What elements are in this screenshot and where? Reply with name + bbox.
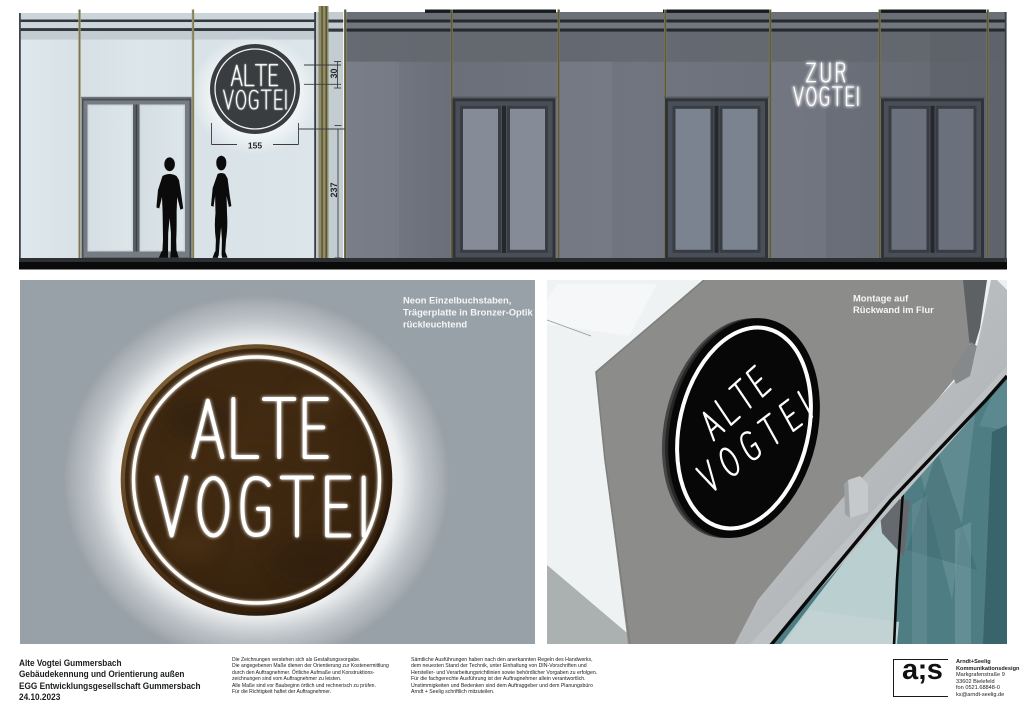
svg-text:30: 30 [329,68,339,78]
svg-text:Montage auf: Montage auf [853,293,909,304]
svg-text:Trägerplatte in Bronzer-Optik: Trägerplatte in Bronzer-Optik [403,307,533,318]
svg-text:155: 155 [248,141,262,151]
svg-text:rückleuchtend: rückleuchtend [403,319,467,330]
svg-text:Rückwand im Flur: Rückwand im Flur [853,304,934,315]
svg-text:Neon Einzelbuchstaben,: Neon Einzelbuchstaben, [403,295,511,306]
svg-text:237: 237 [329,182,339,197]
